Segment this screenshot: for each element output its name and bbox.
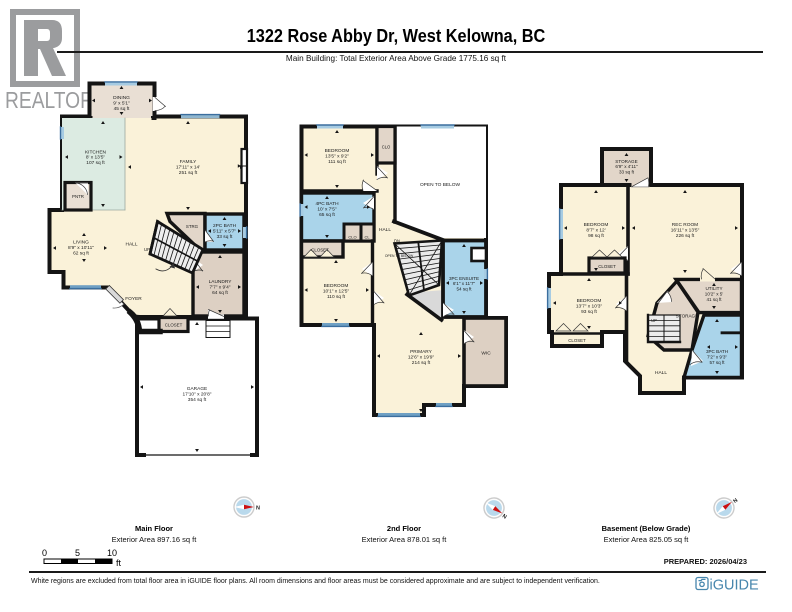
svg-text:54 sq ft: 54 sq ft (456, 286, 472, 291)
svg-text:UP: UP (144, 247, 150, 252)
svg-text:9' x 5'1": 9' x 5'1" (113, 100, 130, 106)
svg-text:FAMILY: FAMILY (180, 159, 198, 165)
svg-text:10'1" x 12'5": 10'1" x 12'5" (323, 288, 350, 294)
svg-text:OPEN TO BELOW: OPEN TO BELOW (385, 254, 414, 258)
svg-text:BEDROOM: BEDROOM (577, 298, 602, 304)
svg-text:93 sq ft: 93 sq ft (581, 309, 597, 315)
svg-text:LAUNDRY: LAUNDRY (209, 279, 233, 285)
svg-text:CLOSET: CLOSET (598, 264, 616, 269)
svg-text:33 sq ft: 33 sq ft (217, 234, 233, 240)
svg-text:CLOSET: CLOSET (568, 338, 586, 343)
svg-text:KITCHEN: KITCHEN (85, 149, 107, 155)
svg-text:12'6" x 19'9": 12'6" x 19'9" (408, 354, 435, 360)
svg-text:STRG: STRG (186, 224, 199, 229)
svg-text:98 sq ft: 98 sq ft (588, 233, 604, 239)
svg-text:8' x 13'5": 8' x 13'5" (86, 155, 106, 161)
svg-text:10'2" x 5': 10'2" x 5' (705, 291, 724, 296)
svg-text:HALL: HALL (655, 370, 667, 376)
svg-text:3PC BATH: 3PC BATH (706, 349, 728, 354)
svg-text:41 sq ft: 41 sq ft (706, 297, 722, 302)
svg-text:DN: DN (394, 239, 400, 244)
svg-text:13'7" x 10'3": 13'7" x 10'3" (576, 303, 603, 309)
svg-text:WIC: WIC (481, 351, 491, 357)
svg-text:ft: ft (116, 558, 122, 568)
svg-text:8'9" x 10'11": 8'9" x 10'11" (68, 245, 94, 251)
svg-text:226 sq ft: 226 sq ft (676, 233, 695, 239)
svg-text:251 sq ft: 251 sq ft (179, 170, 198, 176)
svg-text:111 sq ft: 111 sq ft (328, 159, 346, 165)
svg-text:CLOSET: CLOSET (311, 248, 329, 253)
svg-text:HALL: HALL (379, 227, 391, 233)
svg-text:45 sq ft: 45 sq ft (114, 106, 130, 112)
svg-text:DINING: DINING (113, 95, 130, 101)
svg-text:BEDROOM: BEDROOM (325, 148, 350, 154)
svg-text:STORAGE: STORAGE (676, 314, 698, 319)
svg-text:CL: CL (364, 235, 370, 240)
svg-text:65 sq ft: 65 sq ft (319, 212, 335, 218)
svg-text:214 sq ft: 214 sq ft (412, 360, 431, 366)
svg-text:10: 10 (107, 548, 117, 558)
svg-text:HALL: HALL (126, 242, 138, 248)
svg-text:UP: UP (651, 318, 657, 323)
svg-text:UTILITY: UTILITY (705, 286, 722, 291)
svg-text:OPEN TO BELOW: OPEN TO BELOW (420, 182, 461, 188)
svg-text:62 sq ft: 62 sq ft (73, 250, 89, 256)
svg-text:17'11" x 14': 17'11" x 14' (176, 164, 200, 170)
svg-text:354 sq ft: 354 sq ft (188, 397, 207, 403)
svg-text:13'5" x 9'2": 13'5" x 9'2" (325, 153, 349, 159)
svg-text:BEDROOM: BEDROOM (324, 283, 349, 289)
svg-text:17'10" x 20'8": 17'10" x 20'8" (183, 391, 212, 397)
svg-text:7'7" x 9'4": 7'7" x 9'4" (210, 284, 231, 290)
svg-text:BEDROOM: BEDROOM (584, 222, 609, 228)
svg-text:107 sq ft: 107 sq ft (86, 160, 105, 166)
svg-text:0: 0 (42, 548, 47, 558)
svg-text:LIVING: LIVING (73, 240, 89, 246)
svg-text:CLO: CLO (382, 145, 391, 150)
svg-text:5'11" x 5'7": 5'11" x 5'7" (213, 228, 237, 234)
svg-text:10' x 7'5": 10' x 7'5" (317, 206, 337, 212)
svg-text:iGUIDE: iGUIDE (710, 578, 759, 593)
svg-text:FOYER: FOYER (125, 296, 142, 302)
svg-text:7'2" x 9'3": 7'2" x 9'3" (707, 354, 727, 359)
svg-text:8'7" x 12': 8'7" x 12' (586, 227, 605, 233)
svg-text:5: 5 (75, 548, 80, 558)
svg-text:PNTR: PNTR (72, 194, 84, 199)
svg-text:16'11" x 13'5": 16'11" x 13'5" (671, 227, 700, 233)
svg-text:GARAGE: GARAGE (187, 386, 208, 392)
svg-text:CLO: CLO (348, 235, 356, 240)
svg-text:57 sq ft: 57 sq ft (709, 360, 725, 365)
svg-text:64 sq ft: 64 sq ft (212, 290, 228, 296)
svg-text:REC ROOM: REC ROOM (672, 222, 698, 228)
svg-text:4PC BATH: 4PC BATH (315, 201, 339, 207)
svg-text:PRIMARY: PRIMARY (410, 349, 433, 355)
svg-text:CLOSET: CLOSET (165, 323, 183, 328)
svg-text:110 sq ft: 110 sq ft (327, 294, 346, 300)
svg-text:N: N (256, 506, 260, 512)
svg-text:2PC BATH: 2PC BATH (213, 223, 237, 229)
svg-text:33 sq ft: 33 sq ft (619, 169, 635, 174)
